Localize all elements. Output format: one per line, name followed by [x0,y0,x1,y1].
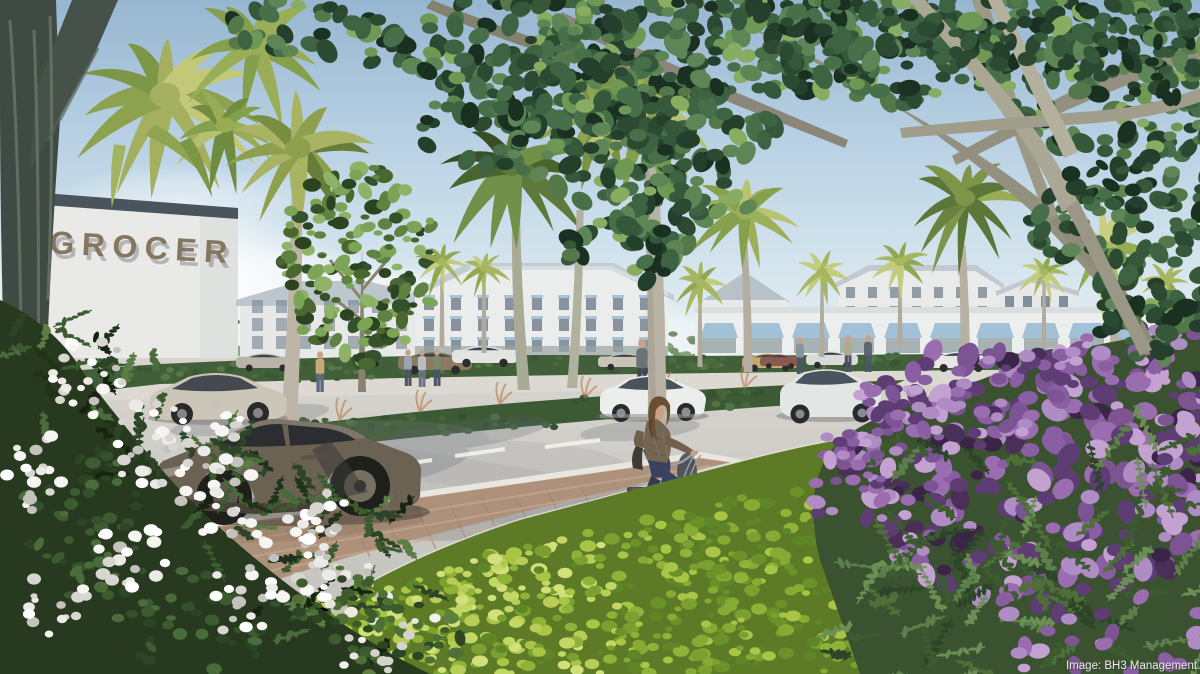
svg-text:Image: BH3 Management: Image: BH3 Management [1066,660,1198,672]
